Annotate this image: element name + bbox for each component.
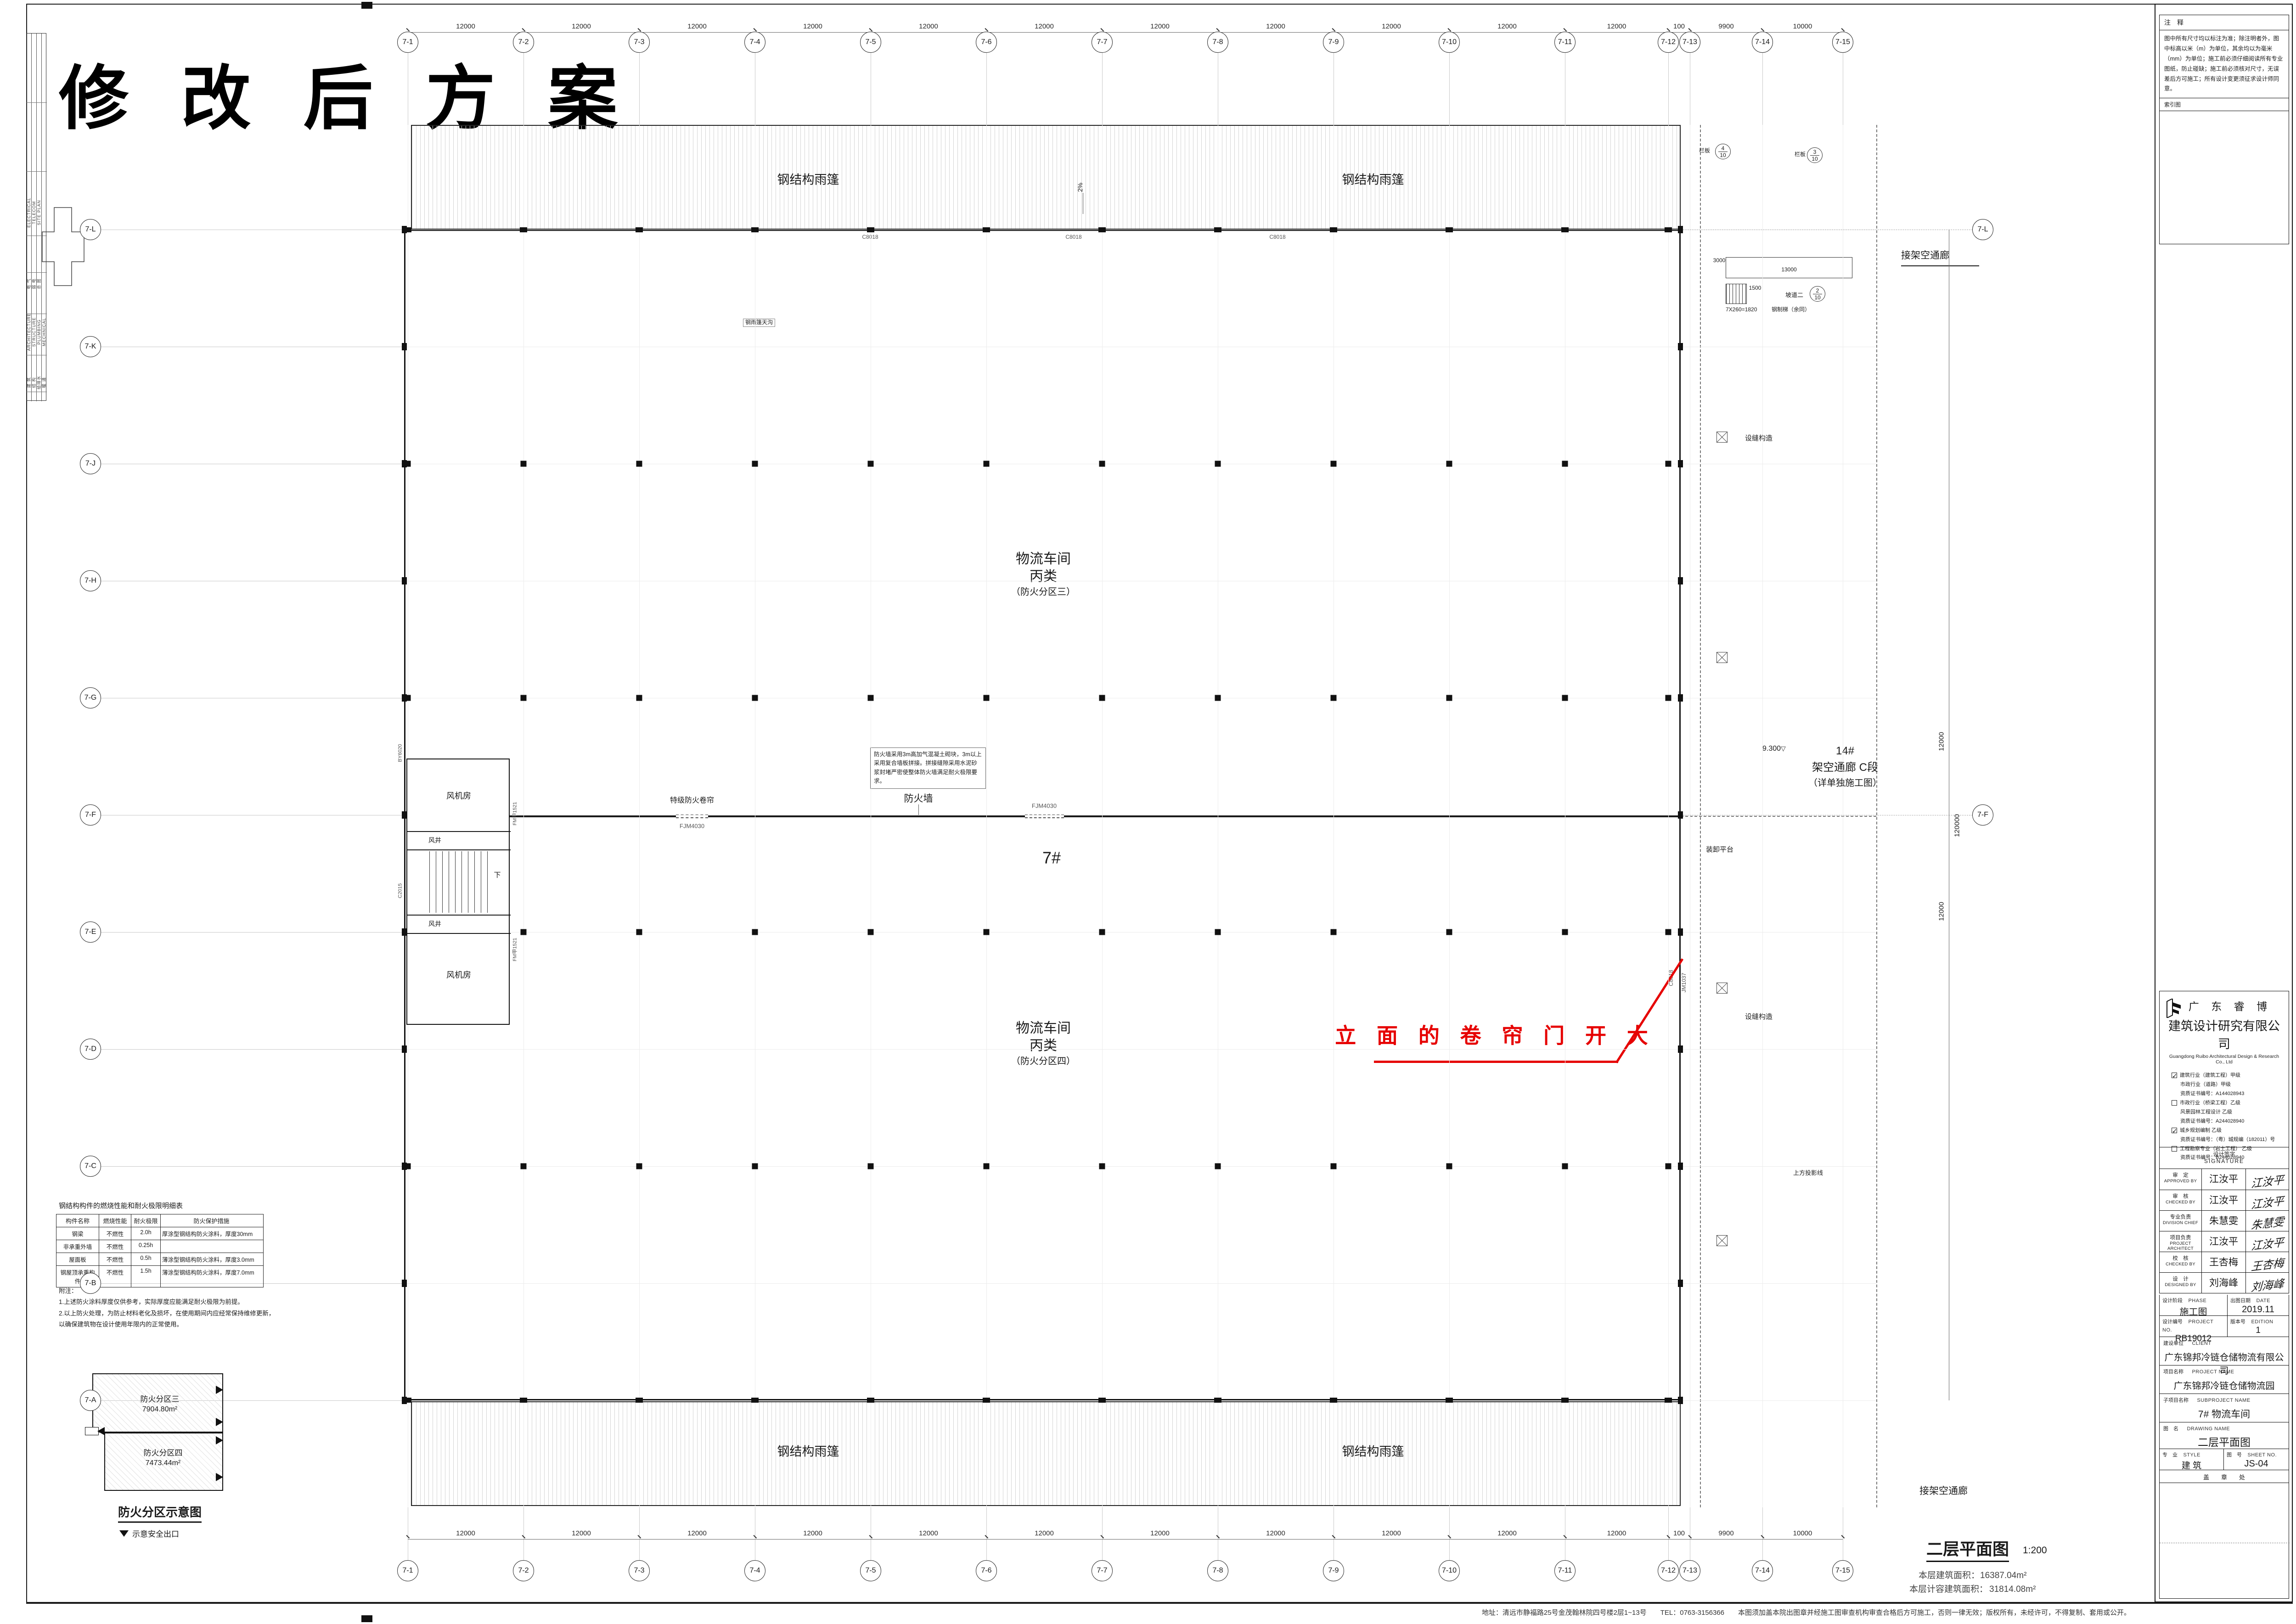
- column-mark: [636, 695, 642, 701]
- qualification-item: 市政行业（道路）甲级: [2172, 1081, 2283, 1089]
- fire-table-cell: [160, 1240, 262, 1253]
- grid-line-v: [639, 125, 640, 1507]
- grid-bubble-top: 7-11: [1554, 32, 1576, 53]
- corridor-label-2: 架空通廊 C段: [1812, 761, 1878, 774]
- zone-upper-line2: 丙类: [1030, 569, 1057, 585]
- column-mark: [1215, 1163, 1221, 1169]
- projno-label-cn: 设计编号: [2162, 1319, 2183, 1325]
- corridor-east-edge: [1876, 125, 1877, 1507]
- floor-area-label: 本层建筑面积：: [1919, 1571, 1980, 1581]
- qualification-text: 资质证书编号：A244028940: [2180, 1118, 2244, 1125]
- wall-pilaster: [983, 1398, 990, 1403]
- column-mark: [984, 1163, 990, 1169]
- column-mark: [636, 461, 642, 467]
- fire-table-header: 防火保护措施: [160, 1214, 262, 1227]
- exit-arrow-1: [216, 1386, 223, 1394]
- dim-value-bottom: 12000: [1150, 1529, 1170, 1537]
- bubble-stem-bottom: [408, 1507, 408, 1561]
- qualification-text: 建筑行业（建筑工程）甲级: [2180, 1072, 2240, 1079]
- bubble-stem-top: [1102, 52, 1103, 125]
- company-brand: 广 东 睿 博: [2164, 998, 2284, 1013]
- index-label: 索引图: [2160, 98, 2289, 111]
- column-mark: [1099, 461, 1105, 467]
- bubble-stem-left: [101, 464, 403, 464]
- checkbox-checked-icon: [2172, 1073, 2177, 1078]
- fire-diagram-title: 防火分区示意图: [118, 1506, 202, 1523]
- bubble-stem-top: [1218, 52, 1218, 125]
- wall-pilaster: [1561, 227, 1569, 232]
- firewall-door-tag-1: FJM4030: [680, 823, 704, 830]
- bubble-stem-left: [101, 1166, 403, 1167]
- column-mark: [752, 1163, 758, 1169]
- grid-line-h: [404, 698, 1876, 698]
- wall-pilaster: [1678, 1397, 1683, 1404]
- bubble-stem-bottom: [1334, 1507, 1334, 1561]
- wall-pilaster: [402, 343, 407, 350]
- grid-bubble-left: 7-F: [80, 804, 101, 826]
- signature-cell: 江汝平: [2246, 1190, 2289, 1210]
- bubble-stem-top: [1565, 52, 1565, 125]
- bubble-stem-bottom: [1218, 1507, 1218, 1561]
- grid-line-v: [1565, 125, 1565, 1507]
- grid-bubble-top: 7-8: [1207, 32, 1228, 53]
- project-label-en: PROJECT NAME: [2192, 1369, 2234, 1375]
- company-name-en: Guangdong Ruibo Architectural Design & R…: [2164, 1054, 2284, 1065]
- stamp-box-divider: [2160, 1543, 2290, 1543]
- signature-name: 朱慧雯: [2202, 1211, 2246, 1231]
- wall-pilaster: [1678, 577, 1683, 584]
- stair-down-label: 下: [494, 871, 501, 879]
- fire-table-header: 构件名称: [56, 1214, 99, 1227]
- wall-pilaster: [402, 928, 407, 936]
- signature-role: 校 核CHECKED BY: [2160, 1252, 2202, 1272]
- signature-role: 设 计DESIGNED BY: [2160, 1273, 2202, 1293]
- bubble-stem-top: [1762, 52, 1763, 125]
- style-label-cn: 专 业: [2162, 1452, 2178, 1458]
- canopy-slope-label: 2%: [1076, 183, 1084, 192]
- sheet-label-cn: 图 号: [2227, 1452, 2242, 1458]
- wall-pilaster: [520, 227, 527, 232]
- signature-cell: 刘海峰: [2246, 1273, 2289, 1293]
- projection-line-label: 上方投影线: [1793, 1170, 1823, 1177]
- grid-line-v: [1218, 125, 1218, 1507]
- wall-pilaster: [1330, 227, 1337, 232]
- dim-tick: [1216, 28, 1220, 31]
- dim-value-bottom: 12000: [1035, 1529, 1054, 1537]
- grid-line-h: [404, 1400, 1876, 1401]
- dim-chain-bottom: [408, 1539, 1843, 1540]
- exit-arrow-4: [216, 1473, 223, 1481]
- zone-lower-line2: 丙类: [1030, 1038, 1057, 1054]
- style-sheet-row: 专 业 STYLE 建 筑 图 号 SHEET NO. JS-04: [2159, 1449, 2289, 1470]
- wall-pilaster: [1330, 1398, 1337, 1403]
- bubble-stem-bottom: [523, 1507, 524, 1561]
- fire-table-cell: 不燃性: [99, 1227, 131, 1240]
- grid-bubble-left: 7-L: [80, 219, 101, 240]
- dim-tick: [406, 28, 410, 31]
- signature-row: 校 核CHECKED BY王杏梅王杏梅: [2160, 1252, 2289, 1272]
- canopy-top-label-1: 钢结构雨篷: [777, 173, 839, 187]
- column-mark: [1215, 695, 1221, 701]
- signature-name: 江汝平: [2202, 1231, 2246, 1252]
- grid-bubble-left: 7-H: [80, 570, 101, 591]
- dwg-label-cn: 图 名: [2163, 1426, 2178, 1432]
- subproject-label-en: SUBPROJECT NAME: [2197, 1398, 2250, 1403]
- qualification-item: 资质证书编号：（粤）城规编（182011）号: [2172, 1136, 2283, 1144]
- dim-tick: [1761, 28, 1764, 31]
- qualification-item: 风景园林工程设计 乙级: [2172, 1109, 2283, 1116]
- style-value: 建 筑: [2162, 1459, 2221, 1471]
- signature-role: 审 核CHECKED BY: [2160, 1190, 2202, 1210]
- wall-pilaster: [1214, 227, 1221, 232]
- column-mark: [984, 461, 990, 467]
- wall-pilaster: [402, 1280, 407, 1287]
- stair-steps: [429, 851, 489, 913]
- signature-name: 王杏梅: [2202, 1252, 2246, 1272]
- signature-cell: 江汝平: [2246, 1231, 2289, 1252]
- stamp-box: [2159, 1483, 2289, 1599]
- dim-tick: [1688, 28, 1692, 31]
- date-label-en: DATE: [2256, 1298, 2270, 1304]
- wall-pilaster: [402, 577, 407, 584]
- fire-table-cell: 非承重外墙: [56, 1240, 99, 1253]
- dim-value-bottom: 12000: [687, 1529, 707, 1537]
- wall-pilaster: [402, 226, 407, 233]
- fire-note-line: 以确保建筑物在设计使用年限内的正常使用。: [59, 1319, 275, 1330]
- dim-value-bottom: 100: [1673, 1529, 1685, 1537]
- exit-arrow-3: [216, 1436, 223, 1444]
- zone-upper-line3: （防火分区三）: [1011, 587, 1075, 598]
- fire-table-header: 燃烧性能: [99, 1214, 131, 1227]
- steel-stair: [1726, 284, 1747, 304]
- zone-lower-line3: （防火分区四）: [1011, 1056, 1075, 1067]
- grid-bubble-bottom: 7-2: [513, 1560, 534, 1581]
- checkbox-checked-icon: [2172, 1128, 2177, 1133]
- fire-table-cell: 不燃性: [99, 1240, 131, 1253]
- dim-value-bottom: 12000: [1607, 1529, 1626, 1537]
- company-logo: [2166, 999, 2182, 1018]
- bubble-stem-left: [101, 932, 403, 933]
- stair-core: 风机房 风井 下 风井 风机房: [406, 759, 510, 1025]
- fire-table-row: 非承重外墙不燃性0.25h: [56, 1240, 263, 1253]
- wall-pilaster: [867, 1398, 874, 1403]
- bubble-stem-bottom: [639, 1507, 640, 1561]
- elevation-value: 9.300: [1762, 745, 1781, 753]
- grid-bubble-left: 7-G: [80, 687, 101, 708]
- column-mark: [984, 929, 990, 935]
- exit-legend-icon: [119, 1530, 129, 1537]
- wall-pilaster: [1678, 928, 1683, 936]
- wall-pilaster: [983, 227, 990, 232]
- fire-table-cell: 0.25h: [131, 1240, 160, 1253]
- grid-line-v: [871, 125, 871, 1507]
- floor-plan: 钢结构雨篷 钢结构雨篷 2% 钢雨篷天沟 C8018 C8018 C8018 钢…: [0, 0, 2296, 1624]
- column-mark: [636, 1163, 642, 1169]
- grid-bubble-bottom: 7-10: [1439, 1560, 1460, 1581]
- dim-chain-right: [1949, 230, 1949, 1400]
- grid-bubble-top: 7-10: [1439, 32, 1460, 53]
- signature-handwriting: 江汝平: [2251, 1191, 2284, 1210]
- zone4-area: 7473.44m²: [146, 1459, 181, 1467]
- qualification-item: 城乡规划编制 乙级: [2172, 1127, 2283, 1135]
- grid-bubble-left: 7-C: [80, 1156, 101, 1177]
- bubble-stem-bottom: [1762, 1507, 1763, 1561]
- grid-line-h: [404, 1166, 1876, 1167]
- bubble-stem-top: [1690, 52, 1690, 125]
- index-box: [2160, 111, 2289, 244]
- grid-line-h: [404, 581, 1876, 581]
- counted-area-value: 31814.08m²: [1989, 1585, 2036, 1595]
- grid-bubble-top: 7-4: [744, 32, 765, 53]
- bubble-stem-right: [1681, 230, 1973, 230]
- dim-value-right: 12000: [1937, 732, 1945, 751]
- checkbox-empty-icon: [2172, 1100, 2177, 1106]
- building-number: 7#: [1042, 848, 1061, 867]
- wall-pilaster: [1678, 1045, 1683, 1053]
- corridor-label-3: （详单独施工图）: [1808, 778, 1882, 789]
- grid-line-h: [404, 1049, 1876, 1050]
- grid-bubble-bottom: 7-6: [976, 1560, 997, 1581]
- grid-bubble-top: 7-9: [1323, 32, 1344, 53]
- grid-bubble-bottom: 7-13: [1679, 1560, 1700, 1581]
- column-mark: [1666, 929, 1671, 935]
- grid-bubble-left: 7-K: [80, 336, 101, 357]
- grid-bubble-bottom: 7-7: [1092, 1560, 1113, 1581]
- slope-arrow-line: [1083, 193, 1083, 214]
- titleblock-column: 注 释 图中所有尺寸均以标注为准；除注明者外，图中标高以米（m）为单位，其余均以…: [2155, 4, 2293, 1602]
- grid-bubble-top: 7-14: [1752, 32, 1773, 53]
- qualification-text: 市政行业（桥梁工程）乙级: [2180, 1100, 2240, 1107]
- wall-pilaster: [751, 227, 759, 232]
- column-mark: [1331, 461, 1337, 467]
- dim-tick: [1667, 28, 1670, 31]
- grid-bubble-top: 7-6: [976, 32, 997, 53]
- grid-line-v: [1334, 125, 1334, 1507]
- fire-table-cell: 屋面板: [56, 1253, 99, 1265]
- sheet-footer: 地址：清远市静福路25号金茂翰林院四号楼2层1~13号 TEL：0763-315…: [937, 1609, 2131, 1617]
- fire-table-cell: 不燃性: [99, 1253, 131, 1265]
- dim-value-top: 12000: [456, 22, 475, 30]
- wall-pilaster: [402, 460, 407, 467]
- project-section: 项目名称 PROJECT NAME 广东锦邦冷链仓储物流园: [2159, 1366, 2289, 1394]
- signature-role: 审 定APPROVED BY: [2160, 1169, 2202, 1190]
- signature-handwriting: 王杏梅: [2251, 1253, 2284, 1272]
- bubble-stem-top: [871, 52, 871, 125]
- column-mark: [868, 1163, 874, 1169]
- grid-line-h: [404, 1283, 1876, 1284]
- grid-line-h: [404, 230, 1876, 230]
- project-label-cn: 项目名称: [2163, 1369, 2183, 1375]
- column-mark: [1666, 1163, 1671, 1169]
- client-label-en: CLIENT: [2192, 1341, 2211, 1346]
- fire-table-cell: 薄涂型钢结构防火涂料，厚度7.0mm: [160, 1266, 262, 1287]
- grid-line-v: [1843, 125, 1843, 1507]
- fire-shutter-label: 特级防火卷帘: [670, 797, 714, 805]
- qualification-text: 风景园林工程设计 乙级: [2180, 1109, 2232, 1116]
- wall-pilaster: [1665, 1398, 1672, 1403]
- column-mark: [1446, 1163, 1452, 1169]
- canopy-bottom: [411, 1401, 1681, 1506]
- detail-bubble: 410: [1715, 144, 1731, 159]
- canopy-top-label-2: 钢结构雨篷: [1342, 173, 1404, 187]
- joint-box-2: [1716, 652, 1728, 663]
- bubble-stem-top: [639, 52, 640, 125]
- grid-bubble-bottom: 7-9: [1323, 1560, 1344, 1581]
- fire-table-header: 耐火极限: [131, 1214, 160, 1227]
- signature-rows: 审 定APPROVED BY江汝平江汝平审 核CHECKED BY江汝平江汝平专…: [2159, 1169, 2289, 1293]
- dim-value-right: 120000: [1953, 814, 1961, 837]
- air-shaft-upper: 风井: [428, 837, 441, 844]
- grid-bubble-top: 7-12: [1658, 32, 1679, 53]
- wall-pilaster: [867, 227, 874, 232]
- qualification-item: 资质证书编号：A144028943: [2172, 1090, 2283, 1098]
- fire-table-cell: 0.5h: [131, 1253, 160, 1265]
- bubble-stem-top: [523, 52, 524, 125]
- qualification-text: 资质证书编号：A144028943: [2180, 1090, 2244, 1098]
- dim-value-bottom: 12000: [1266, 1529, 1285, 1537]
- grid-bubble-bottom: 7-4: [744, 1560, 765, 1581]
- signature-cell: 江汝平: [2246, 1169, 2289, 1190]
- grid-line-h: [404, 464, 1876, 464]
- signature-name: 刘海峰: [2202, 1273, 2246, 1293]
- column-mark: [1099, 929, 1105, 935]
- grid-line-v: [1690, 125, 1690, 1507]
- corridor-connect-top-underline: [1901, 265, 1979, 266]
- exit-arrow-2: [216, 1418, 223, 1426]
- wall-pilaster: [402, 694, 407, 702]
- dim-value-top: 9900: [1718, 22, 1733, 30]
- column-mark: [1215, 929, 1221, 935]
- notes-title: 注 释: [2160, 15, 2289, 30]
- column-mark: [1099, 695, 1105, 701]
- column-mark: [1562, 695, 1568, 701]
- dim-tick: [869, 28, 872, 31]
- date-label-cn: 出图日期: [2230, 1298, 2251, 1304]
- bubble-stem-bottom: [1690, 1507, 1690, 1561]
- bubble-stem-bottom: [1843, 1507, 1843, 1561]
- wall-pilaster: [402, 1045, 407, 1053]
- dim-value-bottom: 10000: [1793, 1529, 1812, 1537]
- column-mark: [984, 695, 990, 701]
- column-mark: [1666, 461, 1671, 467]
- signature-role: 专业负责DIVISION CHIEF: [2160, 1211, 2202, 1231]
- projno-edition-row: 设计编号 PROJECT NO. RB19012 版本号 EDITION 1: [2159, 1316, 2289, 1337]
- dwg-label-en: DRAWING NAME: [2187, 1426, 2230, 1432]
- signature-role: 项目负责PROJECT ARCHITECT: [2160, 1231, 2202, 1252]
- dim-value-top: 12000: [1607, 22, 1626, 30]
- bubble-stem-right: [1681, 815, 1973, 815]
- column-mark: [636, 929, 642, 935]
- dim-value-bottom: 9900: [1718, 1529, 1733, 1537]
- wall-pilaster: [1098, 1398, 1106, 1403]
- fire-table-cell: 厚涂型钢结构防火涂料，厚度30mm: [160, 1227, 262, 1240]
- plan-title-scale: 1:200: [2023, 1545, 2047, 1556]
- dim-tick: [522, 28, 525, 31]
- grid-line-v: [755, 125, 755, 1507]
- ramp-name: 坡道二: [1785, 292, 1803, 299]
- plan-title-name: 二层平面图: [1926, 1540, 2009, 1562]
- qualification-item: 资质证书编号：A244028940: [2172, 1118, 2283, 1125]
- bubble-stem-bottom: [1668, 1507, 1669, 1561]
- signature-cell: 朱慧雯: [2246, 1211, 2289, 1231]
- dim-tick: [985, 28, 988, 31]
- air-shaft-lower: 风井: [428, 920, 441, 927]
- fire-diagram-legend: 示意安全出口: [119, 1530, 179, 1539]
- grid-bubble-bottom: 7-3: [629, 1560, 650, 1581]
- fire-note-line: 2.以上防火处理，为防止材料老化及损坏，在使用期间内应经常保持维修更新，: [59, 1308, 275, 1319]
- dim-value-top: 12000: [803, 22, 822, 30]
- subproject-label-cn: 子项目名称: [2163, 1398, 2189, 1403]
- grid-line-h: [404, 347, 1876, 347]
- grid-bubble-top: 7-5: [860, 32, 881, 53]
- dim-value-top: 100: [1673, 22, 1685, 30]
- window-tag-c2015: C2015: [398, 883, 404, 898]
- qualification-text: 资质证书编号：（粤）城规编（182011）号: [2180, 1136, 2275, 1144]
- notes-body: 图中所有尺寸均以标注为准；除注明者外，图中标高以米（m）为单位，其余均以为毫米（…: [2160, 30, 2289, 98]
- corridor-connect-bottom: 接架空通廊: [1919, 1486, 1968, 1497]
- grid-bubble-top: 7-15: [1832, 32, 1853, 53]
- grid-bubble-bottom: 7-5: [860, 1560, 881, 1581]
- column-mark: [1331, 695, 1337, 701]
- signature-handwriting: 刘海峰: [2251, 1274, 2284, 1293]
- zone3-area: 7904.80m²: [142, 1405, 178, 1414]
- column-mark: [521, 695, 527, 701]
- drawing-name-section: 图 名 DRAWING NAME 二层平面图: [2159, 1422, 2289, 1449]
- dim-value-top: 12000: [572, 22, 591, 30]
- column-mark: [1666, 695, 1671, 701]
- wall-pilaster: [751, 1398, 759, 1403]
- detail-bubble: 310: [1807, 147, 1823, 163]
- dim-tick: [1564, 28, 1567, 31]
- dim-value-bottom: 12000: [1497, 1529, 1517, 1537]
- wall-pilaster: [402, 811, 407, 819]
- phase-label-cn: 设计阶段: [2162, 1298, 2183, 1304]
- grid-line-v: [1449, 125, 1450, 1507]
- bubble-stem-bottom: [986, 1507, 987, 1561]
- dim-value-bottom: 12000: [919, 1529, 938, 1537]
- fire-table-cell: 1.5h: [131, 1266, 160, 1287]
- bubble-stem-bottom: [871, 1507, 871, 1561]
- wall-pilaster: [1446, 1398, 1453, 1403]
- dim-value-top: 12000: [1497, 22, 1517, 30]
- grid-line-h: [404, 932, 1876, 933]
- ramp-dim-1500: 1500: [1749, 285, 1761, 292]
- dim-chain-top: [408, 32, 1843, 33]
- wall-pilaster: [1678, 811, 1683, 819]
- grid-line-v: [1102, 125, 1103, 1507]
- fire-table-row: 屋面板不燃性0.5h薄涂型钢结构防火涂料，厚度3.0mm: [56, 1253, 263, 1265]
- column-mark: [1446, 461, 1452, 467]
- ramp-dim-13000: 13000: [1781, 267, 1796, 273]
- bubble-stem-left: [101, 347, 403, 347]
- bubble-stem-top: [1334, 52, 1334, 125]
- grid-bubble-left: 7-J: [80, 453, 101, 474]
- firewall-extension: [1681, 816, 1876, 817]
- column-mark: [1446, 695, 1452, 701]
- stamp-bar: 盖 章 处: [2159, 1470, 2289, 1483]
- loading-platform-label: 装卸平台: [1706, 846, 1733, 854]
- dim-tick: [754, 28, 757, 31]
- door-tag-fm-1: FM甲1521: [512, 802, 518, 825]
- column-mark: [868, 929, 874, 935]
- bubble-stem-top: [755, 52, 755, 125]
- client-section: 建设单位 CLIENT 广东锦邦冷链仓储物流有限公司: [2159, 1337, 2289, 1366]
- fan-room-lower: 风机房: [446, 971, 471, 980]
- company-name-cn: 建筑设计研究有限公司: [2164, 1016, 2284, 1052]
- edition-label-cn: 版本号: [2230, 1319, 2245, 1325]
- grid-bubble-bottom: 7-11: [1554, 1560, 1576, 1581]
- exit-legend-text: 示意安全出口: [132, 1530, 179, 1539]
